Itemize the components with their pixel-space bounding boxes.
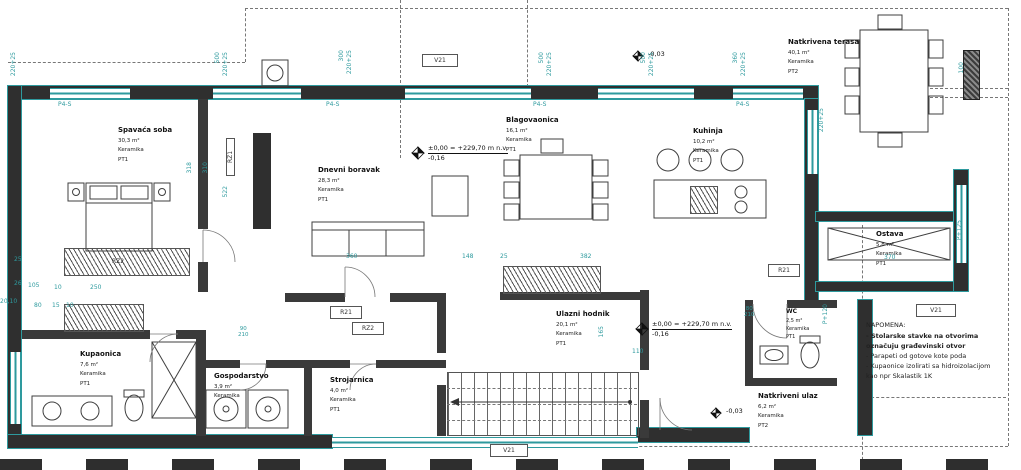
room-label-ostava: Ostava 5,8 m² Keramika PT1 [876,228,903,270]
dim-label: 100 [958,62,965,73]
level-value-below: -0,16 [652,330,732,338]
room-area: 10,2 m² [693,138,723,148]
room-label-natkrivena-terasa: Natkrivena terasa 40,1 m² Keramika PT2 [788,36,859,78]
note-line: - Stolarske stavke na otvorima [866,331,1010,341]
dim-label: 220+25 [10,52,17,76]
window-tag-v21: V21 [916,304,956,317]
room-name: Strojarnica [330,374,373,387]
room-name: Blagovaonica [506,114,559,127]
dim-label: 500 [214,52,221,63]
room-material: Keramika [786,325,809,333]
room-label-spavaca-soba: Spavaća soba 30,3 m² Keramika PT1 [118,124,172,166]
room-label-blagovaonica: Blagovaonica 16,1 m² Keramika PT1 [506,114,559,156]
door-dim: 80 210 [744,306,755,319]
note-line: - Kupaonice izolirati sa hidroizolacijom [866,361,1010,371]
dim-label: 220+25 [546,52,553,76]
sofa [312,222,424,256]
dim-label: 25 [500,253,508,260]
adjacent-drawing-edge [0,459,1021,470]
room-floor-code: PT1 [786,333,809,341]
level-marker-diamonds [412,51,721,418]
dim-label: 80 [34,302,42,309]
note-line: označuju građevinski otvor [866,341,1010,351]
room-name: Gospodarstvo [214,370,269,383]
room-area: 5,8 m² [876,241,903,251]
floor-plan-sheet: Spavaća soba 30,3 m² Keramika PT1 Dnevni… [0,0,1021,470]
dim-label: 220+25 [818,108,825,132]
room-name: Dnevni boravak [318,164,380,177]
room-area: 4,0 m² [330,387,373,397]
notes-block: NAPOMENA: - Stolarske stavke na otvorima… [866,320,1010,381]
room-floor-code: PT1 [330,406,373,416]
level-marker-minor: -0,03 [726,407,743,415]
room-name: Spavaća soba [118,124,172,137]
room-name: Kupaonica [80,348,121,361]
room-floor-code: PT1 [693,157,723,167]
room-name: WC [786,307,809,317]
lintel-tag-p4s: P4-S [533,101,546,108]
note-line: kao npr Skalastik 1K [866,371,1010,381]
parapet-tag-p125: P+125 [956,220,963,240]
room-floor-code: PT1 [556,340,610,350]
room-material: Keramika [330,396,373,406]
radiator-tag-rz2: RZ2 [352,322,384,335]
room-label-kuhinja: Kuhinja 10,2 m² Keramika PT1 [693,125,723,167]
dim-label: 110 [632,348,643,355]
room-material: Keramika [758,412,818,422]
shower [152,342,196,418]
toilet-wc [760,336,820,368]
radiator-tag-r21: R21 [768,264,800,277]
dim-label: 370 [884,254,895,261]
dim-label: 522 [222,186,229,197]
level-marker: ±0,00 = +229,70 m n.v. -0,16 [652,320,732,338]
note-line: - Parapeti od gotove kote poda [866,351,1010,361]
window-tag-v21: V21 [490,444,528,457]
dim-label: 210 [238,332,249,338]
dim-label: 220+25 [346,50,353,74]
furniture-layer [0,0,1021,470]
room-floor-code: PT1 [318,196,380,206]
room-area: 16,1 m² [506,127,559,137]
dim-label: 26 [14,280,22,287]
window-tag-v21: V21 [422,54,458,67]
room-material: Keramika [788,58,859,68]
dim-label: 220+25 [222,52,229,76]
dim-label: 310 [202,162,209,173]
room-area: 6,2 m² [758,403,818,413]
room-floor-code: PT1 [118,156,172,166]
chimney-flue [267,65,283,81]
room-label-gospodarstvo: Gospodarstvo 3,9 m² Keramika [214,370,269,402]
dim-label: 382 [580,253,591,260]
dim-label: 10 [66,302,74,309]
dim-label: 220+25 [648,52,655,76]
dim-label: 300 [338,50,345,61]
radiator-tag-rz1: RZ1 [226,138,235,176]
dim-label: 148 [462,253,473,260]
radiator-tag-rz2: RZ2 [112,258,124,265]
notes-title: NAPOMENA: [866,320,1010,330]
dim-label: 250 [90,284,101,291]
dim-label: 105 [28,282,39,289]
room-area: 7,6 m² [80,361,121,371]
room-name: Ostava [876,228,903,241]
room-floor-code: PT1 [876,260,903,270]
dim-label: 20,10 [0,298,17,305]
room-name: Ulazni hodnik [556,308,610,321]
room-area: 2,5 m² [786,317,809,325]
room-label-natkriveni-ulaz: Natkriveni ulaz 6,2 m² Keramika PT2 [758,390,818,432]
door-dim: 90 210 [238,326,249,339]
room-material: Keramika [318,186,380,196]
room-material: Keramika [506,136,559,146]
dim-label: 210 [744,312,755,318]
dim-label: 500 [640,52,647,63]
dim-label: 318 [186,162,193,173]
bed [68,183,170,251]
level-value: ±0,00 = +229,70 m n.v. [652,320,732,330]
level-value-below: -0,16 [428,154,508,162]
room-floor-code: PT2 [788,68,859,78]
terrace-table [845,15,943,147]
parapet-tag-p120: P+120 [822,304,829,324]
room-floor-code: PT2 [758,422,818,432]
coffee-table [432,176,468,216]
room-floor-code: PT1 [506,146,559,156]
room-label-kupaonica: Kupaonica 7,6 m² Keramika PT1 [80,348,121,390]
room-name: Natkriveni ulaz [758,390,818,403]
lintel-tag-p4s: P4-S [326,101,339,108]
dim-label: 10 [54,284,62,291]
level-value: ±0,00 = +229,70 m n.v. [428,144,508,154]
room-name: Kuhinja [693,125,723,138]
dim-label: 360 [732,52,739,63]
dim-label: 15 [52,302,60,309]
room-material: Keramika [118,146,172,156]
room-label-strojarnica: Strojarnica 4,0 m² Keramika PT1 [330,374,373,416]
dim-label: 165 [598,326,605,337]
level-marker: ±0,00 = +229,70 m n.v. -0,16 [428,144,508,162]
room-label-wc: WC 2,5 m² Keramika PT1 [786,307,809,341]
room-label-dnevni-boravak: Dnevni boravak 28,3 m² Keramika PT1 [318,164,380,206]
room-area: 28,3 m² [318,177,380,187]
stairs-direction-arrow [450,398,632,406]
lintel-tag-p4s: P4-S [58,101,71,108]
room-area: 30,3 m² [118,137,172,147]
radiator-tag-r21: R21 [330,306,362,319]
room-material: Keramika [80,370,121,380]
dim-label: 25 [14,256,22,263]
room-material: Keramika [693,147,723,157]
room-area: 3,9 m² [214,383,269,393]
dim-label: 220+25 [740,52,747,76]
chimney-top [262,60,288,86]
room-area: 40,1 m² [788,49,859,59]
dim-label: 360 [346,253,357,260]
room-material: Keramika [214,392,269,402]
bathroom-vanity [32,396,112,426]
dim-label: 500 [538,52,545,63]
toilet-bathroom [124,390,144,421]
lintel-tag-p4s: P4-S [736,101,749,108]
room-floor-code: PT1 [80,380,121,390]
room-name: Natkrivena terasa [788,36,859,49]
